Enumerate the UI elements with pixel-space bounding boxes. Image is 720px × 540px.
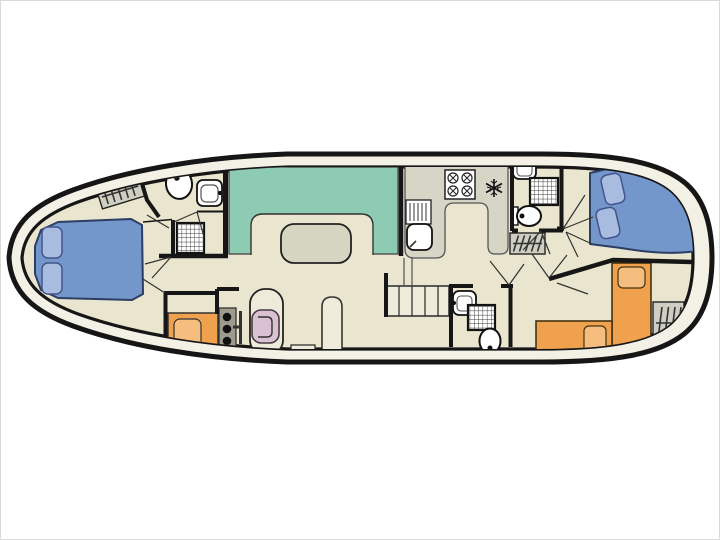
aft-shower [468, 305, 495, 330]
helm-chair [252, 310, 279, 343]
bow-pillow-1 [42, 227, 62, 258]
mid-shower [530, 178, 558, 205]
mid-toilet [512, 206, 541, 226]
galley-sink [406, 200, 432, 250]
bow-pillow-2 [42, 263, 62, 294]
companionway-steps [386, 286, 449, 316]
stove [445, 170, 475, 199]
bow-shower [177, 223, 204, 253]
floorplan-canvas [0, 0, 720, 540]
console-knobs [223, 313, 232, 346]
salon-locker-arch [322, 297, 342, 353]
boat-floorplan [1, 1, 720, 540]
twin-bed-vertical-pillow [618, 267, 645, 288]
bow-washbasin [197, 180, 222, 206]
bow-cabin [35, 219, 143, 300]
mid-hatch-steps [510, 233, 545, 254]
dinette [229, 167, 398, 263]
dinette-table [281, 224, 351, 263]
